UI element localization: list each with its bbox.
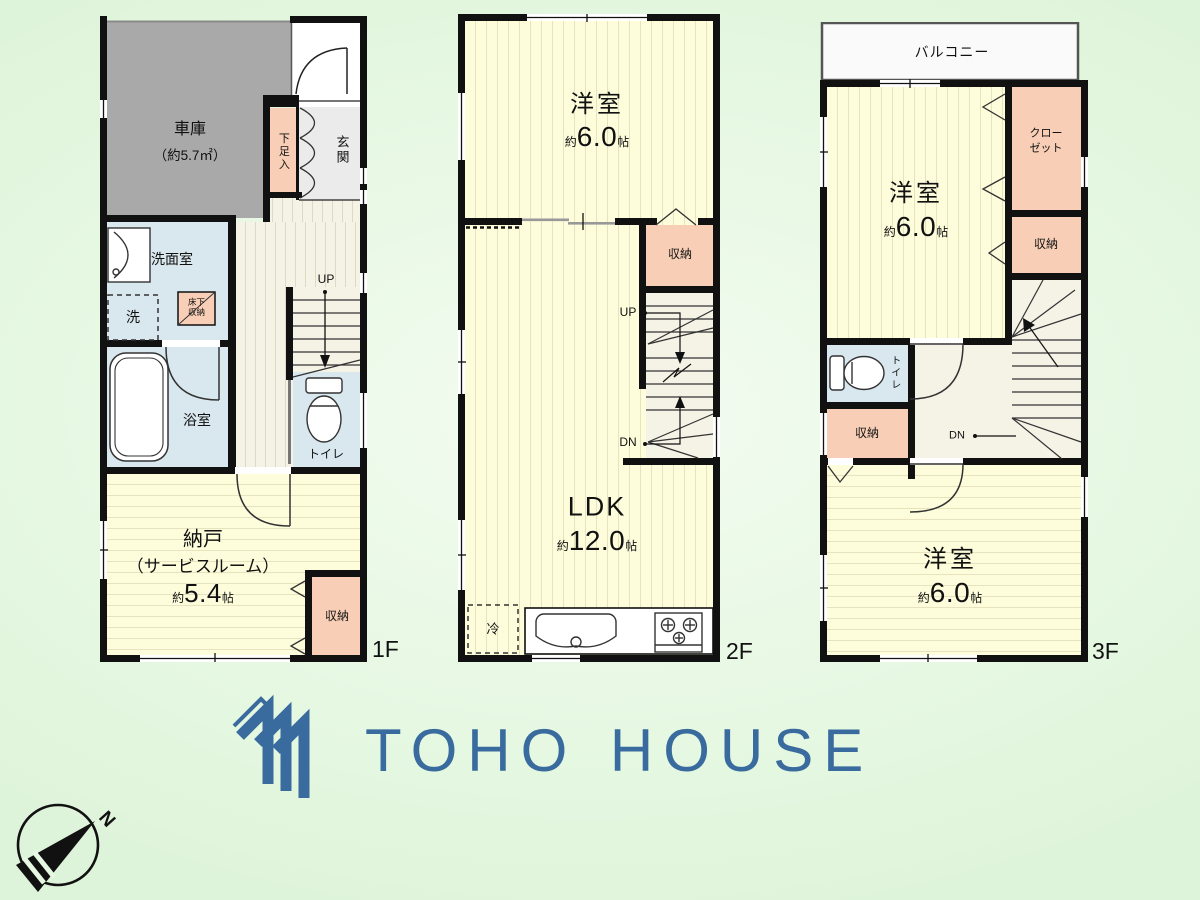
compass-needle bbox=[16, 821, 95, 892]
closet-3f-label-2: ゼット bbox=[1030, 143, 1063, 156]
storeroom-size-label: 約5.4帖 bbox=[172, 579, 234, 609]
bathroom-door-arc bbox=[162, 340, 220, 400]
toilet-icon-3f bbox=[830, 356, 884, 390]
floor-3-tag: 3F bbox=[1092, 638, 1119, 665]
floor-2-tag: 2F bbox=[726, 638, 753, 665]
garage-label: 車庫 bbox=[174, 121, 206, 139]
floor-1-tag: 1F bbox=[372, 636, 399, 663]
bedroom-3f-bottom-size: 約6.0帖 bbox=[918, 577, 982, 609]
compass-north-label: N bbox=[94, 807, 119, 831]
toilet-icon-1f bbox=[306, 378, 342, 442]
up-label-1f: UP bbox=[318, 273, 335, 287]
closet-3f-label-1: クロー bbox=[1030, 128, 1063, 141]
stairs-3f bbox=[1012, 280, 1081, 459]
ldk-size-label: 約12.0帖 bbox=[557, 525, 638, 557]
toilet-door-1f bbox=[288, 380, 291, 464]
garage-area-label: （約5.7㎡） bbox=[154, 148, 227, 164]
bath-label: 浴室 bbox=[183, 412, 211, 428]
shoe-box-label: 下足入 bbox=[277, 133, 290, 172]
storage-3f-right-label: 収納 bbox=[1034, 238, 1058, 252]
storeroom-label: 納戸 bbox=[183, 529, 223, 552]
ldk-label: LDK bbox=[568, 491, 627, 522]
closet-door-chevrons-1f bbox=[291, 581, 305, 654]
toho-house-logo: TOHO HOUSE bbox=[232, 688, 873, 806]
floorplan-canvas: 車庫 （約5.7㎡） 下足入 玄関 洗面室 洗 床下 収納 UP 浴室 トイレ … bbox=[0, 0, 1200, 900]
floor-3-plan: バルコニー 洋室 約6.0帖 クロー ゼット 収納 トイレ 収納 DN 洋室 約… bbox=[820, 22, 1090, 662]
toho-house-logo-text: TOHO HOUSE bbox=[365, 716, 873, 785]
toilet-label-3f: トイレ bbox=[888, 355, 900, 391]
storage-3f-left-label: 収納 bbox=[855, 427, 879, 441]
stairs-1f bbox=[293, 300, 360, 377]
floor-2-plan: 洋室 約6.0帖 収納 UP DN LDK 約12.0帖 冷 bbox=[458, 14, 720, 662]
kitchen-counter bbox=[525, 608, 713, 654]
storeroom-door-arc bbox=[235, 467, 291, 526]
compass: N bbox=[10, 788, 120, 900]
sink-icon bbox=[108, 228, 150, 282]
balcony-label: バルコニー bbox=[915, 44, 990, 60]
dn-label-3f: DN bbox=[949, 430, 965, 443]
washer-label: 洗 bbox=[126, 309, 140, 325]
floor-1-plan: 車庫 （約5.7㎡） 下足入 玄関 洗面室 洗 床下 収納 UP 浴室 トイレ … bbox=[100, 16, 367, 662]
bathtub-icon bbox=[110, 353, 168, 461]
toilet-label-1f: トイレ bbox=[308, 448, 344, 462]
washroom-label: 洗面室 bbox=[151, 251, 193, 267]
storage-left-chevron bbox=[828, 466, 853, 482]
dn-label-2f: DN bbox=[619, 436, 636, 450]
closet-door-chevrons-3f bbox=[983, 94, 1005, 264]
fridge-label: 冷 bbox=[486, 623, 499, 638]
up-arrow-1f bbox=[320, 290, 330, 368]
bedroom-door-arc-3f bbox=[910, 458, 963, 512]
compass-icon: N bbox=[10, 788, 120, 896]
closet-2f-label: 収納 bbox=[668, 248, 692, 262]
bedroom-3f-top-label: 洋室 bbox=[889, 180, 943, 208]
bedroom-2f-size: 約6.0帖 bbox=[565, 121, 629, 153]
bedroom-3f-top-size: 約6.0帖 bbox=[884, 211, 948, 243]
bedroom-3f-bottom-label: 洋室 bbox=[923, 546, 977, 574]
underfloor-label-2: 収納 bbox=[188, 308, 205, 318]
closet-door-chevron-2f bbox=[656, 209, 696, 225]
storage-left-opening bbox=[828, 458, 853, 465]
shoe-cabinet-doors bbox=[300, 108, 315, 198]
entry-alcove bbox=[291, 21, 360, 96]
entrance-label: 玄関 bbox=[334, 135, 349, 165]
up-label-2f: UP bbox=[620, 306, 637, 320]
toho-house-logo-icon bbox=[232, 688, 337, 806]
closet-label-1f: 収納 bbox=[325, 610, 349, 624]
hall-door-arc-3f bbox=[910, 338, 963, 399]
storeroom-sub-label: （サービスルーム） bbox=[127, 557, 280, 577]
bedroom-2f-label: 洋室 bbox=[570, 91, 624, 119]
stair-guide-arrows-2f bbox=[643, 311, 691, 446]
